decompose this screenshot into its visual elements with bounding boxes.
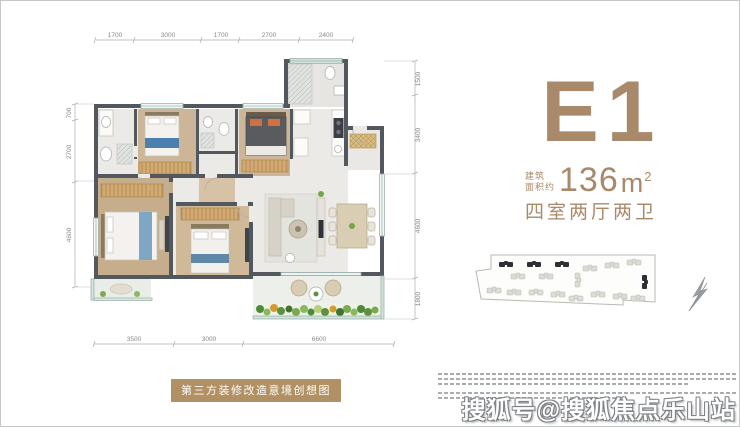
area-prefix: 建筑 面积约 bbox=[525, 171, 555, 194]
screenshot-frame: 1700 3000 1700 2700 2400 3500 3000 6600 … bbox=[0, 0, 740, 427]
dim-label: 3000 bbox=[202, 336, 217, 343]
dim-label: 2400 bbox=[319, 32, 334, 39]
dim-label: 3400 bbox=[415, 127, 422, 142]
siteplan bbox=[473, 247, 723, 329]
dim-label: 3500 bbox=[127, 336, 142, 343]
dim-label: 3000 bbox=[161, 32, 176, 39]
dim-label: 1700 bbox=[214, 32, 229, 39]
unit-code: E1 bbox=[471, 69, 733, 155]
dim-label: 1700 bbox=[108, 32, 123, 39]
unit-rooms: 四室两厅两卫 bbox=[525, 197, 657, 224]
area-number: 136 bbox=[559, 163, 619, 197]
dim-label: 4600 bbox=[415, 218, 422, 233]
north-arrow-icon bbox=[689, 277, 707, 311]
area-unit: m bbox=[621, 169, 644, 197]
dim-label: 2700 bbox=[66, 144, 73, 159]
unit-info: E1 bbox=[471, 69, 733, 155]
dim-label: 2700 bbox=[262, 32, 277, 39]
unit-area: 建筑 面积约 136 m 2 bbox=[525, 163, 651, 197]
dim-label: 700 bbox=[66, 107, 73, 118]
dim-label: 1500 bbox=[415, 71, 422, 86]
area-exponent: 2 bbox=[644, 170, 651, 183]
dim-label: 4600 bbox=[66, 227, 73, 242]
dim-label: 1800 bbox=[415, 291, 422, 306]
watermark: 搜狐号@搜狐焦点乐山站 bbox=[462, 390, 736, 425]
floorplan-drawing: 1700 3000 1700 2700 2400 3500 3000 6600 … bbox=[41, 26, 441, 361]
dim-label: 6600 bbox=[312, 336, 327, 343]
caption-badge: 第三方装修改造意境创想图 bbox=[171, 379, 341, 402]
